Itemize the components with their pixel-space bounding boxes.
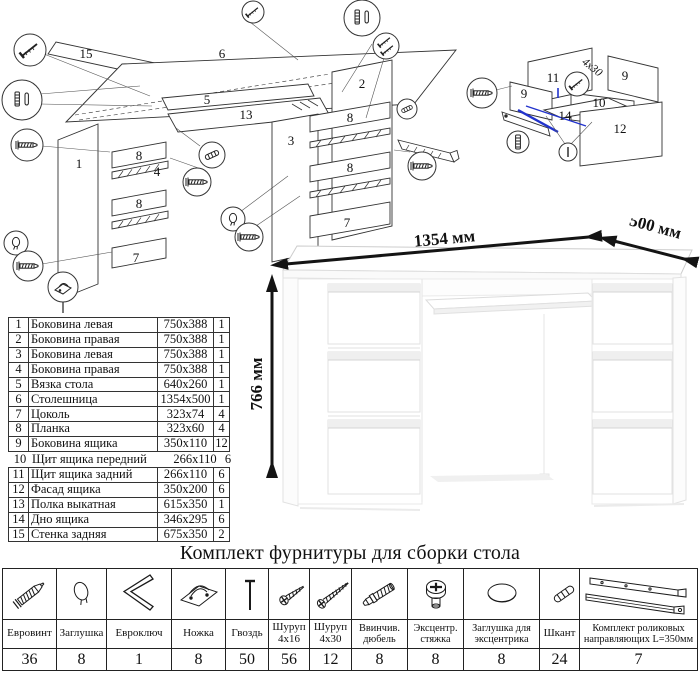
callout-dowel-pin <box>344 0 380 36</box>
part-size: 750x388 <box>158 347 214 362</box>
part-size: 350x200 <box>158 482 214 497</box>
part-label-8a: 8 <box>136 148 143 163</box>
part-name: Дно ящика <box>29 512 158 527</box>
hardware-qty: 8 <box>57 649 107 671</box>
depth-dimension-label: 500 мм <box>627 218 683 243</box>
part-num: 8 <box>9 422 29 437</box>
drawer-slides-icon <box>582 570 696 618</box>
foot-icon <box>175 570 223 618</box>
panel-drawer-side-right <box>608 56 658 102</box>
hardware-name: Ввинчив. дюбель <box>352 620 408 649</box>
table-row: 3Боковина левая750x3881 <box>9 347 230 362</box>
hardware-name: Шуруп 4x16 <box>269 620 310 649</box>
hardware-name: Заглушка <box>57 620 107 649</box>
part-num: 10 <box>8 452 32 467</box>
part-qty: 1 <box>214 392 230 407</box>
part-num: 13 <box>9 497 29 512</box>
part-name: Боковина правая <box>29 332 158 347</box>
part-qty: 4 <box>214 407 230 422</box>
hardware-qty: 8 <box>408 649 464 671</box>
hardware-kit-title: Комплект фурнитуры для сборки стола <box>0 542 700 565</box>
parts-table-top: 1Боковина левая750x3881 2Боковина правая… <box>8 317 230 452</box>
part-qty: 4 <box>214 422 230 437</box>
table-row: 1Боковина левая750x3881 <box>9 318 230 333</box>
cam-cap-icon <box>478 570 526 618</box>
part-label-7a: 7 <box>133 250 140 265</box>
cap-icon <box>58 570 106 618</box>
part-name: Стенка задняя <box>29 527 158 542</box>
hardware-kit-table: Евровинт Заглушка Евроключ Ножка Гвоздь … <box>2 568 698 671</box>
hardware-name: Заглушка для эксцентрика <box>464 620 540 649</box>
part-num: 7 <box>9 407 29 422</box>
part-name: Боковина ящика <box>29 437 158 452</box>
hardware-icons-row <box>3 569 698 620</box>
part-num: 14 <box>9 512 29 527</box>
hardware-qty: 8 <box>172 649 226 671</box>
table-row: 9Боковина ящика350x11012 <box>9 437 230 452</box>
part-name: Вязка стола <box>29 377 158 392</box>
part-size: 323x74 <box>158 407 214 422</box>
table-row: 6Столешница1354x5001 <box>9 392 230 407</box>
part-num: 5 <box>9 377 29 392</box>
part-name: Полка выкатная <box>29 497 158 512</box>
part-qty: 6 <box>214 468 230 483</box>
part-size: 615x350 <box>158 497 214 512</box>
part-qty: 2 <box>214 527 230 542</box>
part-label-8b: 8 <box>136 196 143 211</box>
callout-screws <box>373 33 399 59</box>
part-name: Цоколь <box>29 407 158 422</box>
hardware-qty: 7 <box>580 649 698 671</box>
hardware-name: Шкант <box>540 620 580 649</box>
part-size: 266x110 <box>158 468 214 483</box>
hardware-name: Евровинт <box>3 620 57 649</box>
part-label-13: 13 <box>240 107 253 122</box>
desk-render <box>283 246 692 510</box>
callout-threaded-dowel <box>507 131 529 153</box>
hardware-name: Комплект роликовых направляющих L=350мм <box>580 620 698 649</box>
part-qty: 1 <box>214 318 230 333</box>
callout-dowel-pin <box>2 80 42 120</box>
part-num: 1 <box>9 318 29 333</box>
hardware-qty: 8 <box>464 649 540 671</box>
part-name: Щит ящика передний <box>32 452 170 467</box>
part-num: 9 <box>9 437 29 452</box>
table-row: 12Фасад ящика350x2006 <box>9 482 230 497</box>
parts-row-unboxed: 10 Щит ящика передний 266x110 6 <box>8 452 236 467</box>
part-label-14: 14 <box>559 108 573 123</box>
part-label-12: 12 <box>614 121 627 136</box>
table-row: 2Боковина правая750x3881 <box>9 332 230 347</box>
part-num: 12 <box>9 482 29 497</box>
parts-list: 1Боковина левая750x3881 2Боковина правая… <box>8 317 234 542</box>
part-label-8c: 8 <box>347 110 354 125</box>
part-label-3: 3 <box>288 133 295 148</box>
table-row: 4Боковина правая750x3881 <box>9 362 230 377</box>
part-size: 266x110 <box>170 452 220 467</box>
part-label-1: 1 <box>76 156 83 171</box>
part-name: Столешница <box>29 392 158 407</box>
table-row: 5Вязка стола640x2601 <box>9 377 230 392</box>
part-num: 2 <box>9 332 29 347</box>
hardware-qty: 50 <box>226 649 269 671</box>
part-size: 675x350 <box>158 527 214 542</box>
part-size: 346x295 <box>158 512 214 527</box>
threaded-dowel-icon <box>356 570 404 618</box>
part-size: 750x388 <box>158 332 214 347</box>
hardware-qty: 56 <box>269 649 310 671</box>
parts-table-bottom: 11Щит ящика задний266x1106 12Фасад ящика… <box>8 467 230 542</box>
table-row: 11Щит ящика задний266x1106 <box>9 468 230 483</box>
part-num: 6 <box>9 392 29 407</box>
callout-foot <box>48 272 78 302</box>
hardware-qty: 12 <box>310 649 352 671</box>
part-name: Боковина левая <box>29 347 158 362</box>
part-name: Боковина правая <box>29 362 158 377</box>
part-size: 1354x500 <box>158 392 214 407</box>
part-size: 640x260 <box>158 377 214 392</box>
table-row: 15Стенка задняя675x3502 <box>9 527 230 542</box>
part-qty: 1 <box>214 362 230 377</box>
cam-lock-icon <box>412 570 460 618</box>
hardware-name: Эксцентр. стяжка <box>408 620 464 649</box>
part-size: 750x388 <box>158 362 214 377</box>
part-label-2: 2 <box>359 76 366 91</box>
table-row: 14Дно ящика346x2956 <box>9 512 230 527</box>
assembly-instruction-sheet: 15 6 5 13 1 8 4 8 7 3 2 8 8 7 <box>0 0 700 677</box>
part-label-4: 4 <box>154 164 161 179</box>
hardware-name: Гвоздь <box>226 620 269 649</box>
part-label-9b: 9 <box>622 68 629 83</box>
exploded-drawer-diagram: 11 9 9 10 14 12 4x30 <box>440 40 700 225</box>
part-size: 750x388 <box>158 318 214 333</box>
hex-key-icon <box>115 570 163 618</box>
part-qty: 1 <box>214 332 230 347</box>
hardware-name: Шуруп 4x30 <box>310 620 352 649</box>
part-num: 4 <box>9 362 29 377</box>
hardware-qty: 1 <box>107 649 172 671</box>
part-num: 15 <box>9 527 29 542</box>
height-dimension-label: 766 мм <box>250 357 266 410</box>
part-name: Щит ящика задний <box>29 468 158 483</box>
part-label-10: 10 <box>593 95 606 110</box>
hardware-qty: 24 <box>540 649 580 671</box>
part-label-5: 5 <box>204 92 211 107</box>
part-qty: 1 <box>214 377 230 392</box>
part-qty: 12 <box>214 437 230 452</box>
nail-icon <box>226 570 274 618</box>
hardware-names-row: Евровинт Заглушка Евроключ Ножка Гвоздь … <box>3 620 698 649</box>
part-label-8d: 8 <box>347 160 354 175</box>
part-label-15: 15 <box>80 46 93 61</box>
part-name: Боковина левая <box>29 318 158 333</box>
part-label-9a: 9 <box>521 86 528 101</box>
part-label-6: 6 <box>219 46 226 61</box>
part-qty: 1 <box>214 497 230 512</box>
part-num: 11 <box>9 468 29 483</box>
table-row: 13Полка выкатная615x3501 <box>9 497 230 512</box>
euro-screw-icon <box>6 570 54 618</box>
hardware-name: Евроключ <box>107 620 172 649</box>
desk-dimension-figure: 1354 мм 500 мм 766 мм <box>250 218 700 545</box>
part-label-11: 11 <box>547 70 560 85</box>
hardware-qty: 8 <box>352 649 408 671</box>
hardware-name: Ножка <box>172 620 226 649</box>
table-row: 8Планка323x604 <box>9 422 230 437</box>
part-name: Фасад ящика <box>29 482 158 497</box>
hardware-qty-row: 36 8 1 8 50 56 12 8 8 8 24 7 <box>3 649 698 671</box>
hardware-qty: 36 <box>3 649 57 671</box>
part-num: 3 <box>9 347 29 362</box>
part-qty: 6 <box>220 452 236 467</box>
part-qty: 6 <box>214 512 230 527</box>
part-qty: 1 <box>214 347 230 362</box>
part-qty: 6 <box>214 482 230 497</box>
part-size: 323x60 <box>158 422 214 437</box>
part-size: 350x110 <box>158 437 214 452</box>
part-name: Планка <box>29 422 158 437</box>
table-row: 7Цоколь323x744 <box>9 407 230 422</box>
